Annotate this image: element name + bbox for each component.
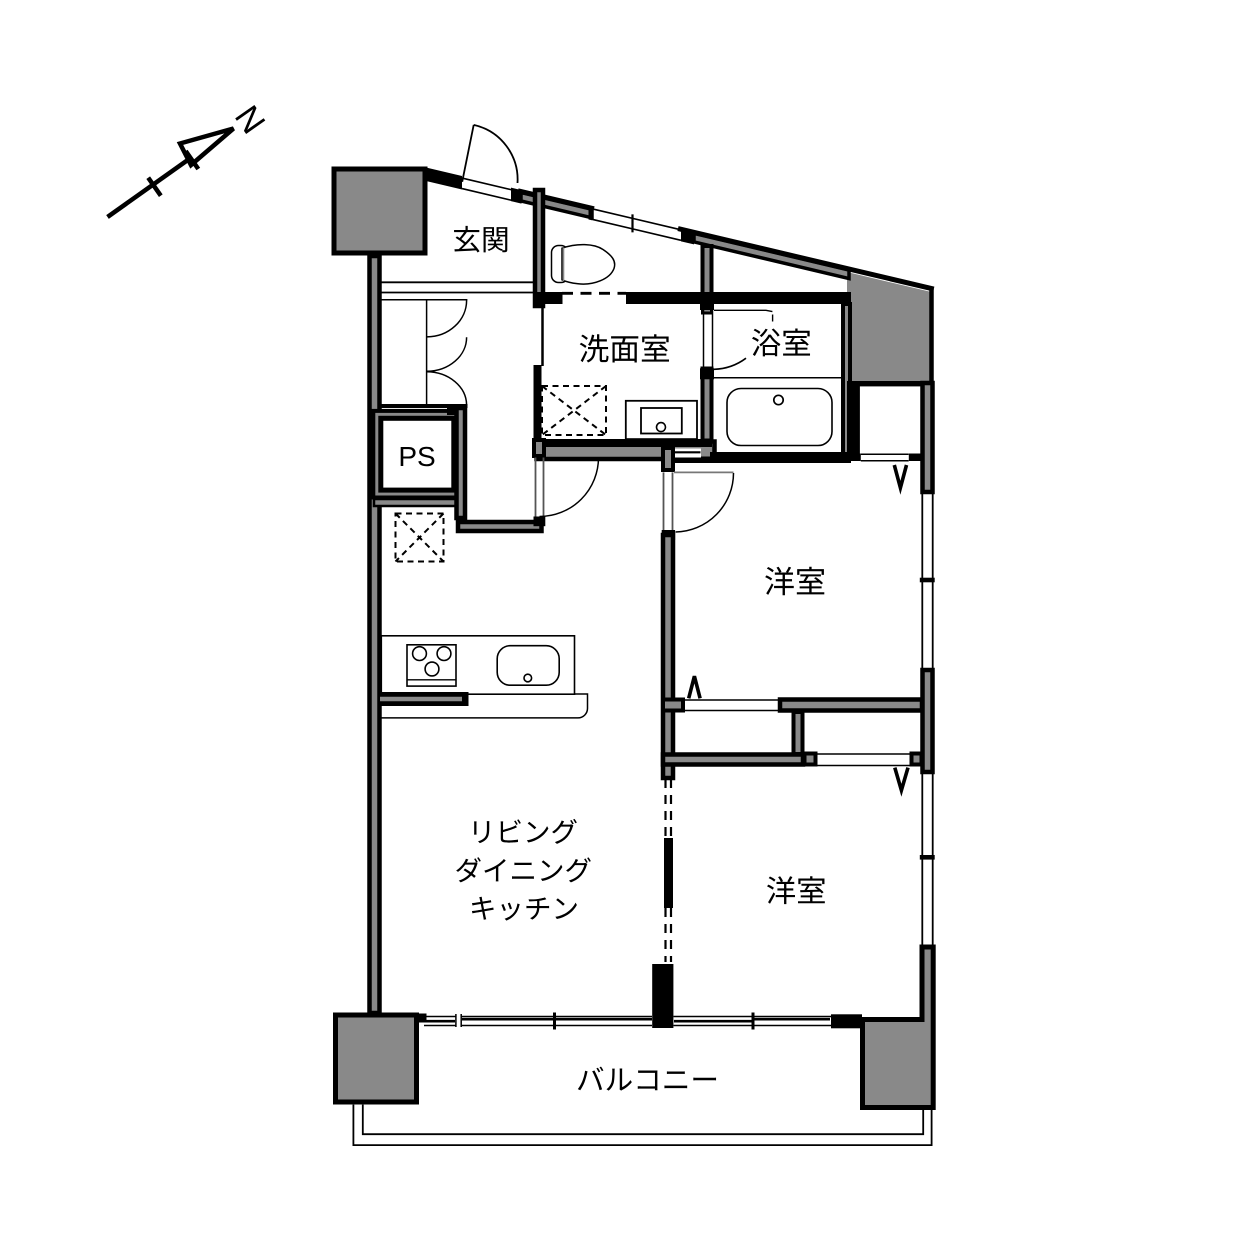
svg-text:PS: PS — [398, 441, 435, 472]
